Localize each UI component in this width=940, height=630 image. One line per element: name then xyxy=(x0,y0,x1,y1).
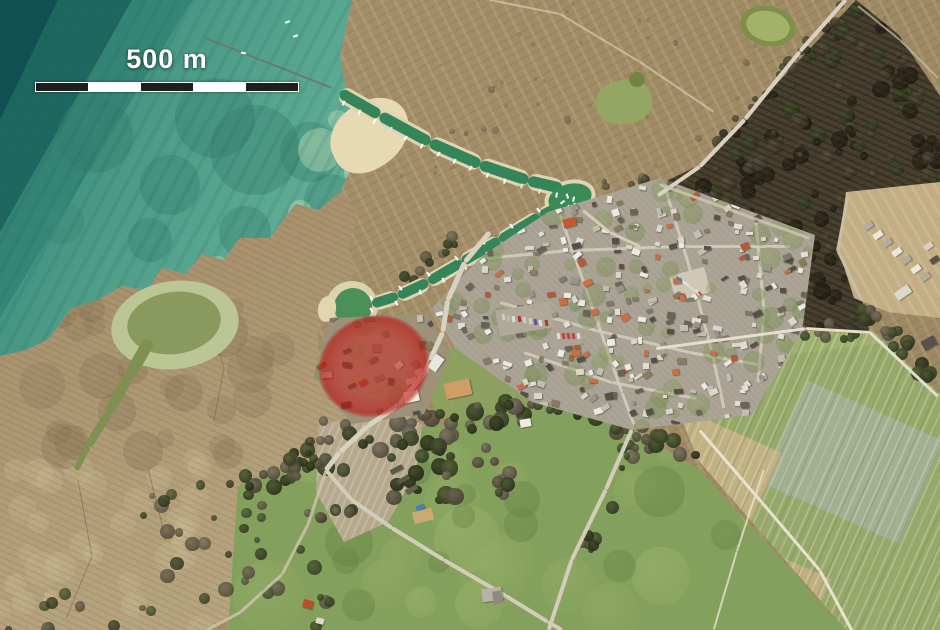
parked-car xyxy=(544,320,548,326)
parked-car xyxy=(571,333,575,339)
scale-segment xyxy=(36,83,88,91)
aerial-map: 500 m xyxy=(0,0,940,630)
parked-car xyxy=(566,333,570,339)
dig-site xyxy=(412,508,434,525)
barn-roof xyxy=(492,590,503,604)
parked-car xyxy=(556,333,560,339)
clubhouse-building xyxy=(562,216,577,228)
red-roof-house xyxy=(302,599,314,609)
shed-row xyxy=(389,464,403,475)
shed-row xyxy=(396,474,410,485)
dark-house xyxy=(920,335,937,351)
scale-segment xyxy=(246,83,298,91)
parked-car xyxy=(517,316,521,322)
notable-buildings xyxy=(0,0,940,630)
shed-row xyxy=(404,484,418,495)
scale-segment xyxy=(193,83,245,91)
parked-car xyxy=(501,314,505,320)
scale-bar: 500 m xyxy=(35,44,299,92)
scale-bar-segments xyxy=(35,82,299,92)
parked-car xyxy=(561,333,565,339)
scale-segment xyxy=(88,83,140,91)
scale-bar-label: 500 m xyxy=(35,44,299,74)
scale-segment xyxy=(141,83,193,91)
sports-court xyxy=(444,378,473,399)
parked-car xyxy=(528,318,532,324)
pale-building xyxy=(427,354,444,373)
small-house xyxy=(315,617,324,625)
parked-car xyxy=(576,333,580,339)
meadow-house xyxy=(519,418,531,428)
